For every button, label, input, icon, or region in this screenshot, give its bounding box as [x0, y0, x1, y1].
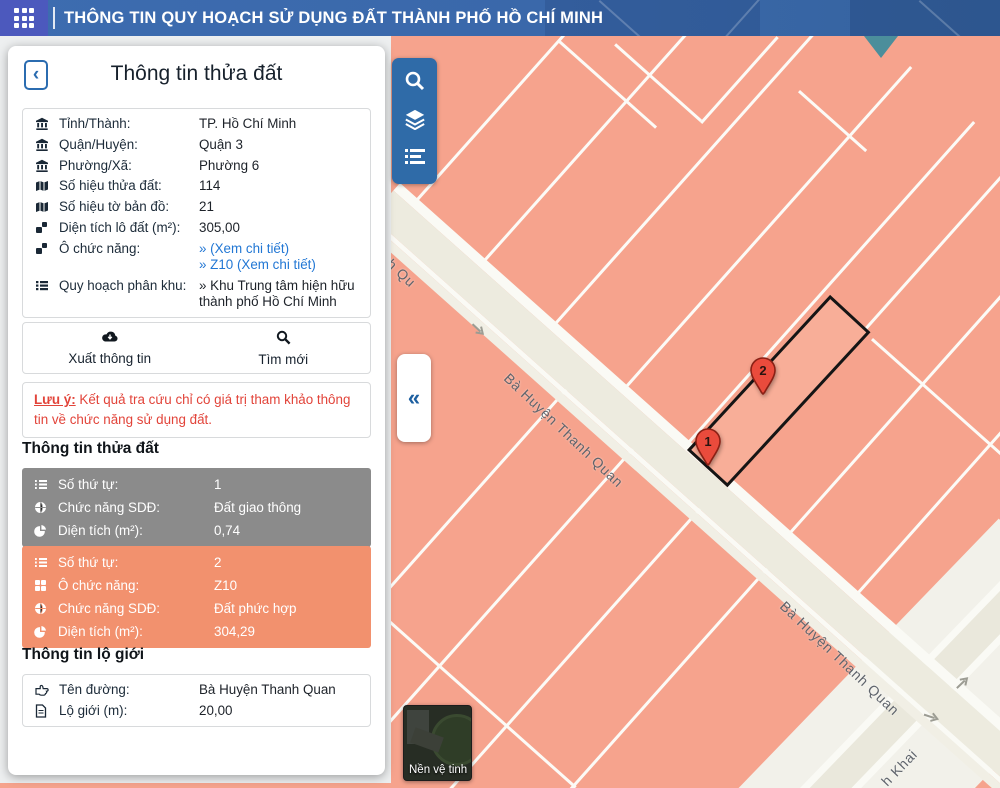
layers-icon	[403, 108, 427, 135]
card-value: Đất giao thông	[214, 498, 359, 517]
detail-label: Quận/Huyện:	[59, 137, 199, 153]
map-icon	[35, 178, 59, 193]
grid-cells-icon	[34, 576, 58, 592]
detail-label: Diện tích lô đất (m²):	[59, 220, 199, 236]
detail-value: TP. Hồ Chí Minh	[199, 116, 358, 132]
ordered-list-icon	[34, 475, 58, 491]
card-row: Số thứ tự: 2	[22, 551, 371, 574]
panel-title: Thông tin thửa đất	[48, 62, 345, 86]
cloud-download-icon	[101, 331, 119, 348]
header-divider	[53, 7, 55, 29]
card-row: Chức năng SDĐ: Đất phức hợp	[22, 597, 371, 620]
app-menu-button[interactable]	[0, 0, 48, 36]
detail-label: Tỉnh/Thành:	[59, 116, 199, 132]
parcel-item-2-card[interactable]: Số thứ tự: 2 Ô chức năng: Z10 Chức năng …	[22, 546, 371, 648]
card-row: Diện tích (m²): 304,29	[22, 620, 371, 643]
globe-icon	[34, 599, 58, 615]
card-row: Số thứ tự: 1	[22, 473, 371, 496]
view-detail-link[interactable]: » (Xem chi tiết)	[199, 241, 358, 257]
card-label: Ô chức năng:	[58, 576, 214, 595]
detail-label: Ô chức năng:	[59, 241, 199, 257]
map-parcel-line	[700, 36, 779, 124]
actions-box: Xuất thông tin Tìm mới	[22, 322, 371, 374]
detail-row: Số hiệu tờ bản đồ: 21	[23, 197, 370, 218]
parcel-item-1-card[interactable]: Số thứ tự: 1 Chức năng SDĐ: Đất giao thô…	[22, 468, 371, 547]
view-detail-z10-link[interactable]: » Z10 (Xem chi tiết)	[199, 257, 358, 273]
map-legend-button[interactable]	[400, 144, 430, 174]
bank-icon	[35, 158, 59, 173]
note-text: Kết quả tra cứu chỉ có giá trị tham khảo…	[34, 392, 350, 427]
card-value: 304,29	[214, 622, 359, 641]
detail-label: Số hiệu tờ bản đồ:	[59, 199, 199, 215]
card-value: Z10	[214, 576, 359, 595]
bank-icon	[35, 116, 59, 131]
detail-label: Lộ giới (m):	[59, 703, 199, 719]
card-label: Chức năng SDĐ:	[58, 599, 214, 618]
detail-value: » Khu Trung tâm hiện hữu thành phố Hồ Ch…	[199, 278, 358, 311]
note-prefix: Lưu ý:	[34, 392, 76, 407]
export-info-label: Xuất thông tin	[23, 351, 197, 366]
map-parcel-line	[554, 2, 842, 325]
section-parcel-heading: Thông tin thửa đất	[22, 440, 159, 458]
document-icon	[35, 703, 59, 718]
search-icon	[276, 332, 291, 349]
map-icon	[35, 199, 59, 214]
search-icon	[404, 70, 426, 97]
map-parcel-line	[624, 66, 912, 389]
list-icon	[404, 148, 426, 171]
card-row: Chức năng SDĐ: Đất giao thông	[22, 496, 371, 519]
detail-row: Số hiệu thửa đất: 114	[23, 176, 370, 197]
back-button[interactable]: ‹	[24, 60, 48, 90]
hand-point-icon	[35, 682, 59, 696]
export-info-button[interactable]: Xuất thông tin	[23, 323, 197, 373]
card-value: 1	[214, 475, 359, 494]
card-label: Chức năng SDĐ:	[58, 498, 214, 517]
app-window: anh Qu Bà Huyện Thanh Quan Bà Huyện Than…	[0, 0, 1000, 788]
detail-row: Quy hoạch phân khu: » Khu Trung tâm hiện…	[23, 275, 370, 312]
new-search-label: Tìm mới	[197, 352, 371, 367]
card-row: Ô chức năng: Z10	[22, 574, 371, 597]
list-icon	[35, 278, 59, 292]
card-row: Diện tích (m²): 0,74	[22, 519, 371, 542]
detail-value: Phường 6	[199, 158, 358, 174]
map-parcel-line	[614, 43, 702, 122]
map-search-button[interactable]	[400, 68, 430, 98]
card-value: 2	[214, 553, 359, 572]
detail-label: Tên đường:	[59, 682, 199, 698]
detail-value: Quận 3	[199, 137, 358, 153]
card-label: Số thứ tự:	[58, 553, 214, 572]
detail-label: Phường/Xã:	[59, 158, 199, 174]
area-chart-icon	[35, 241, 59, 255]
detail-row: Lộ giới (m): 20,00	[23, 701, 370, 722]
detail-value: 20,00	[199, 703, 358, 719]
new-search-button[interactable]: Tìm mới	[197, 323, 371, 373]
map-marker-1[interactable]: 1	[695, 428, 721, 466]
map-teal-feature	[864, 36, 898, 58]
card-value: 0,74	[214, 521, 359, 540]
detail-row: Phường/Xã: Phường 6	[23, 155, 370, 176]
svg-text:1: 1	[704, 434, 711, 449]
panel-collapse-button[interactable]: «	[397, 354, 431, 442]
info-panel-card: ‹ Thông tin thửa đất Tỉnh/Thành: TP. Hồ …	[8, 46, 385, 775]
note-box: Lưu ý: Kết quả tra cứu chỉ có giá trị th…	[22, 382, 371, 438]
detail-value: 114	[199, 178, 358, 194]
pie-chart-icon	[34, 521, 58, 537]
map-marker-2[interactable]: 2	[750, 357, 776, 395]
card-label: Số thứ tự:	[58, 475, 214, 494]
app-title: THÔNG TIN QUY HOẠCH SỬ DỤNG ĐẤT THÀNH PH…	[64, 0, 603, 36]
grid-icon	[14, 8, 34, 28]
detail-value: 21	[199, 199, 358, 215]
map-toolbar	[392, 58, 437, 184]
map-parcel-line	[798, 90, 867, 152]
map-parcel-line	[871, 338, 1000, 480]
map-street-ba-huyen-thanh-quan	[361, 183, 1000, 788]
detail-row: Diện tích lô đất (m²): 305,00	[23, 218, 370, 239]
parcel-details-box: Tỉnh/Thành: TP. Hồ Chí Minh Quận/Huyện: …	[22, 108, 371, 318]
ordered-list-icon	[34, 553, 58, 569]
road-info-box: Tên đường: Bà Huyện Thanh Quan Lộ giới (…	[22, 674, 371, 727]
basemap-switcher[interactable]: Nền vệ tinh	[403, 705, 472, 781]
section-road-heading: Thông tin lộ giới	[22, 646, 144, 664]
basemap-label: Nền vệ tinh	[409, 764, 467, 776]
card-label: Diện tích (m²):	[58, 622, 214, 641]
area-chart-icon	[35, 220, 59, 234]
svg-text:2: 2	[759, 363, 766, 378]
detail-value: » (Xem chi tiết) » Z10 (Xem chi tiết)	[199, 241, 358, 274]
globe-icon	[34, 498, 58, 514]
map-layers-button[interactable]	[400, 106, 430, 136]
detail-row: Tỉnh/Thành: TP. Hồ Chí Minh	[23, 114, 370, 135]
detail-label: Số hiệu thửa đất:	[59, 178, 199, 194]
detail-row: Ô chức năng: » (Xem chi tiết) » Z10 (Xem…	[23, 238, 370, 275]
map-parcel-line	[687, 121, 975, 444]
card-value: Đất phức hợp	[214, 599, 359, 618]
detail-value: 305,00	[199, 220, 358, 236]
detail-row: Quận/Huyện: Quận 3	[23, 135, 370, 156]
detail-row: Tên đường: Bà Huyện Thanh Quan	[23, 680, 370, 701]
detail-value: Bà Huyện Thanh Quan	[199, 682, 358, 698]
card-label: Diện tích (m²):	[58, 521, 214, 540]
info-panel: ‹ Thông tin thửa đất Tỉnh/Thành: TP. Hồ …	[0, 36, 391, 783]
app-header: THÔNG TIN QUY HOẠCH SỬ DỤNG ĐẤT THÀNH PH…	[0, 0, 1000, 36]
detail-label: Quy hoạch phân khu:	[59, 278, 199, 294]
bank-icon	[35, 137, 59, 152]
pie-chart-icon	[34, 622, 58, 638]
